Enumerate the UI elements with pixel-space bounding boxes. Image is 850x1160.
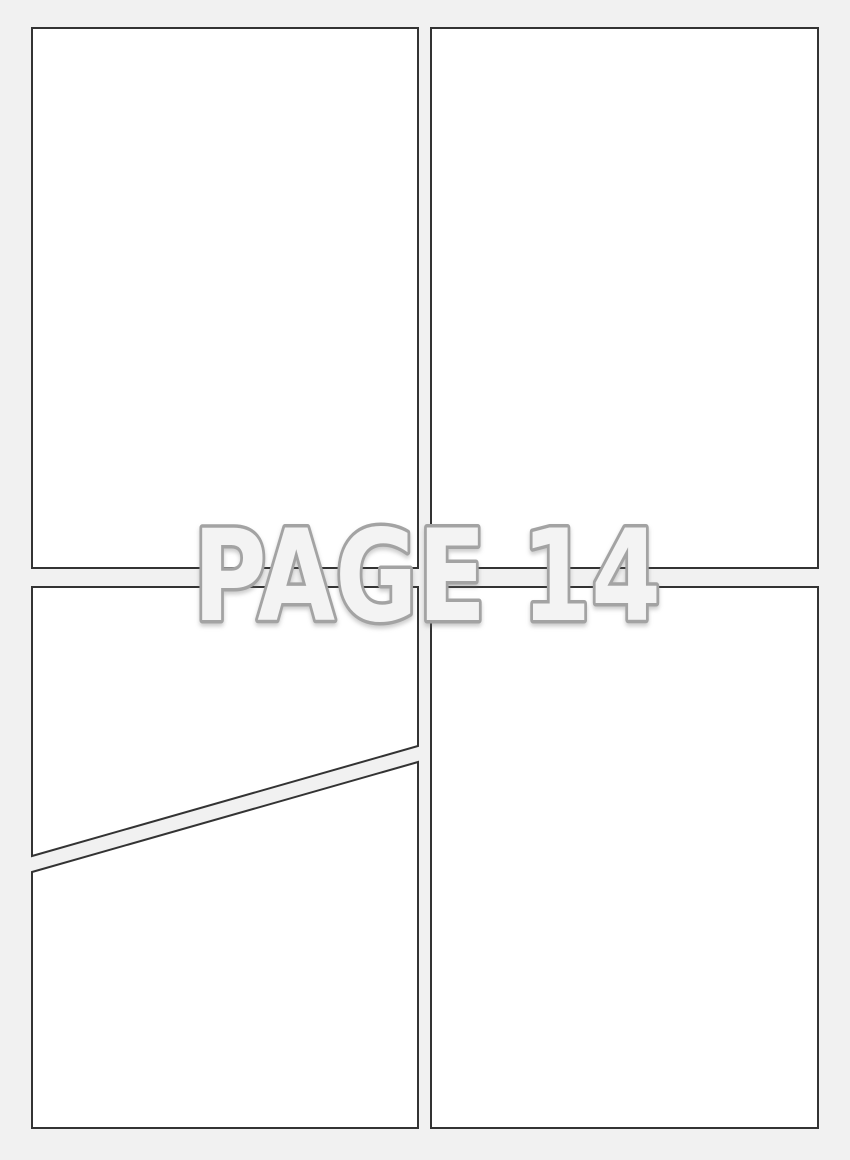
comic-page-template: PAGE 14 bbox=[0, 0, 850, 1160]
panel-top-left bbox=[31, 27, 419, 569]
page-number-watermark: PAGE 14 bbox=[140, 490, 720, 650]
page-number-text: PAGE 14 bbox=[193, 502, 661, 650]
panel-group-diagonal bbox=[31, 586, 419, 1129]
panel-bottom-right bbox=[430, 586, 819, 1129]
panel-top-right bbox=[430, 27, 819, 569]
